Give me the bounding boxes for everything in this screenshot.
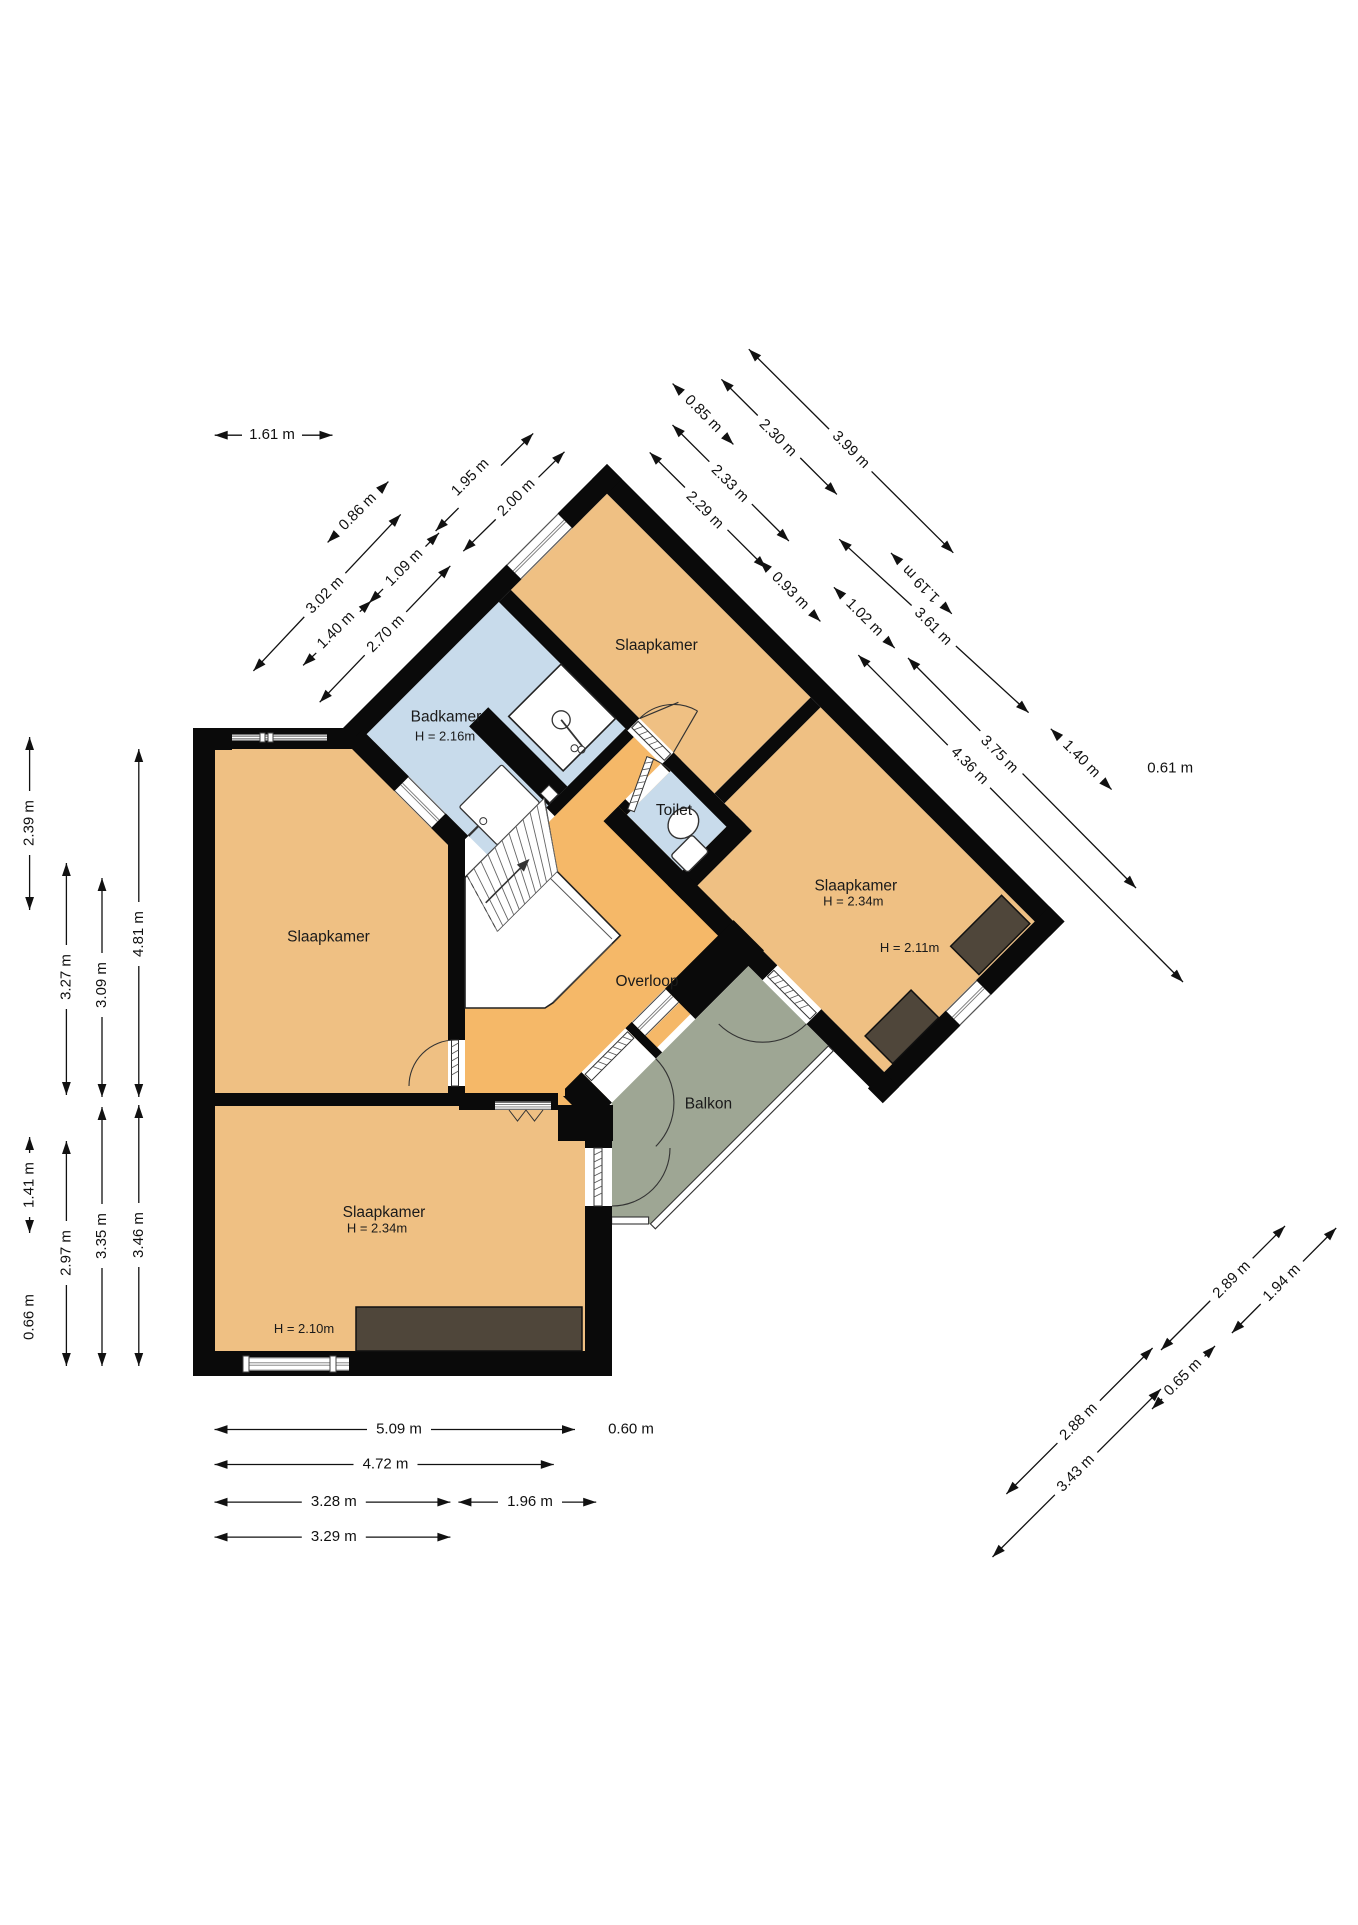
svg-text:Slaapkamer: Slaapkamer [287,929,370,946]
svg-text:1.41 m: 1.41 m [21,1162,38,1208]
svg-text:Slaapkamer: Slaapkamer [343,1204,426,1221]
svg-text:4.72 m: 4.72 m [363,1455,409,1472]
svg-text:1.96 m: 1.96 m [507,1493,553,1510]
svg-text:Badkamer: Badkamer [411,709,482,726]
svg-text:3.29 m: 3.29 m [311,1528,357,1545]
svg-text:Balkon: Balkon [685,1095,732,1112]
svg-text:0.61 m: 0.61 m [1147,759,1193,776]
svg-text:5.09 m: 5.09 m [376,1420,422,1437]
svg-text:0.66 m: 0.66 m [21,1294,38,1340]
svg-text:H = 2.16m: H = 2.16m [415,728,475,743]
svg-text:H = 2.34m: H = 2.34m [347,1220,407,1235]
svg-text:3.09 m: 3.09 m [93,962,110,1008]
svg-text:2.97 m: 2.97 m [57,1230,74,1276]
svg-text:2.39 m: 2.39 m [21,800,38,846]
svg-text:3.28 m: 3.28 m [311,1493,357,1510]
svg-text:Slaapkamer: Slaapkamer [615,637,698,654]
svg-text:3.46 m: 3.46 m [130,1212,147,1258]
svg-text:3.35 m: 3.35 m [93,1213,110,1259]
svg-text:H = 2.34m: H = 2.34m [823,894,883,909]
svg-text:Toilet: Toilet [656,802,693,819]
svg-text:4.81 m: 4.81 m [130,911,147,957]
svg-text:Slaapkamer: Slaapkamer [814,877,897,894]
svg-text:H = 2.11m: H = 2.11m [880,940,939,955]
svg-text:1.61 m: 1.61 m [249,426,295,443]
svg-text:3.27 m: 3.27 m [57,954,74,1000]
svg-text:Overloop: Overloop [616,973,679,990]
svg-text:0.60 m: 0.60 m [608,1420,654,1437]
svg-text:H = 2.10m: H = 2.10m [274,1321,334,1336]
